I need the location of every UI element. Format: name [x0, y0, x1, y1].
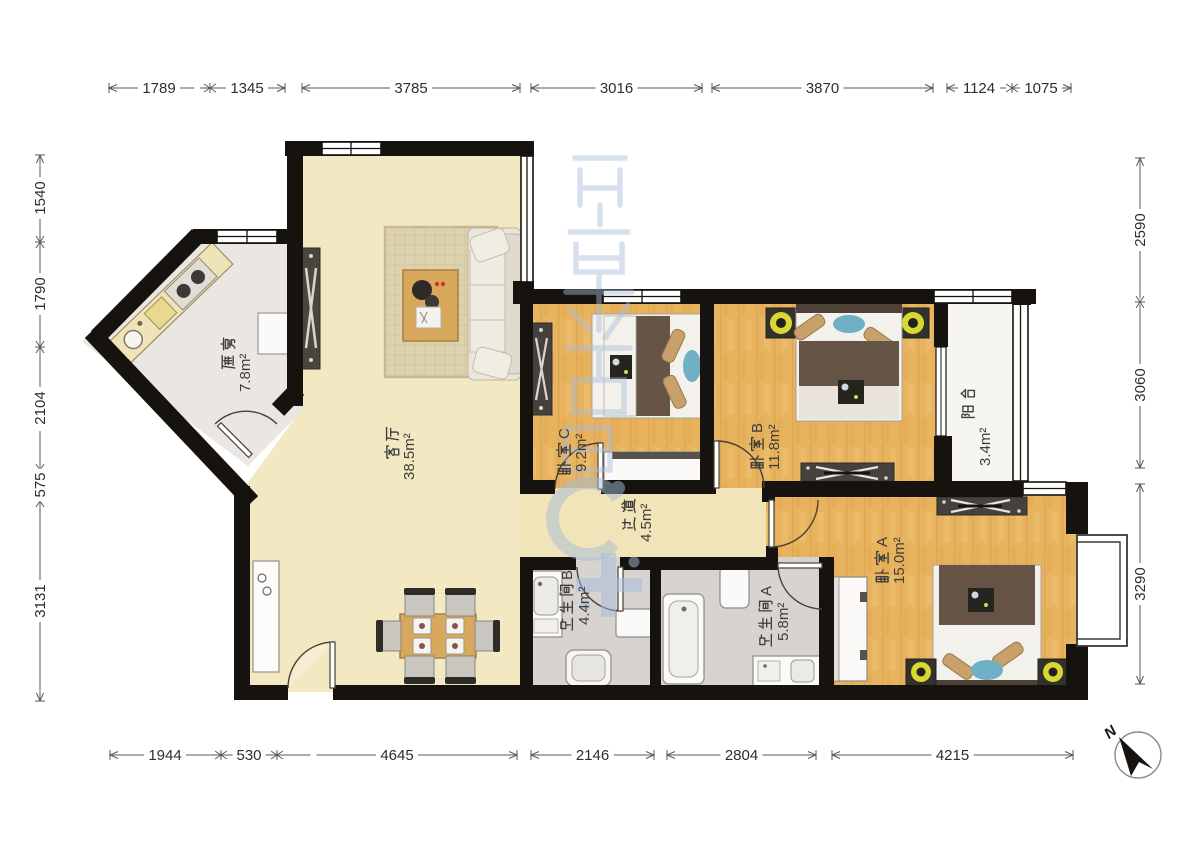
svg-text:2804: 2804 [725, 747, 758, 764]
svg-text:1789: 1789 [142, 80, 175, 97]
svg-text:7.8m²: 7.8m² [237, 354, 254, 392]
svg-text:3785: 3785 [394, 80, 427, 97]
svg-text:2146: 2146 [576, 747, 609, 764]
svg-text:B: B [749, 423, 766, 433]
svg-text:C: C [556, 428, 573, 439]
svg-text:3060: 3060 [1132, 368, 1149, 401]
svg-text:A: A [874, 537, 891, 547]
svg-text:1075: 1075 [1024, 80, 1057, 97]
svg-text:B: B [559, 570, 576, 580]
svg-text:4645: 4645 [380, 747, 413, 764]
svg-text:1790: 1790 [32, 277, 49, 310]
svg-text:5.8m²: 5.8m² [775, 603, 792, 641]
svg-text:530: 530 [236, 747, 261, 764]
svg-text:38.5m²: 38.5m² [401, 433, 418, 480]
svg-text:4.5m²: 4.5m² [638, 504, 655, 542]
svg-text:2590: 2590 [1132, 213, 1149, 246]
svg-text:A: A [758, 586, 775, 596]
svg-text:9.2m²: 9.2m² [573, 434, 590, 472]
svg-text:1124: 1124 [963, 80, 995, 97]
svg-text:15.0m²: 15.0m² [891, 537, 908, 584]
svg-text:1345: 1345 [230, 80, 263, 97]
svg-text:2104: 2104 [32, 391, 49, 424]
svg-text:3870: 3870 [806, 80, 839, 97]
svg-text:3290: 3290 [1132, 567, 1149, 600]
svg-text:3131: 3131 [32, 584, 49, 617]
svg-text:3.4m²: 3.4m² [977, 428, 994, 466]
svg-text:4.4m²: 4.4m² [576, 587, 593, 625]
svg-text:575: 575 [32, 472, 49, 497]
svg-text:11.8m²: 11.8m² [766, 424, 783, 470]
svg-text:1540: 1540 [32, 181, 49, 214]
svg-text:1944: 1944 [148, 747, 181, 764]
svg-text:4215: 4215 [936, 747, 969, 764]
svg-text:3016: 3016 [600, 80, 633, 97]
